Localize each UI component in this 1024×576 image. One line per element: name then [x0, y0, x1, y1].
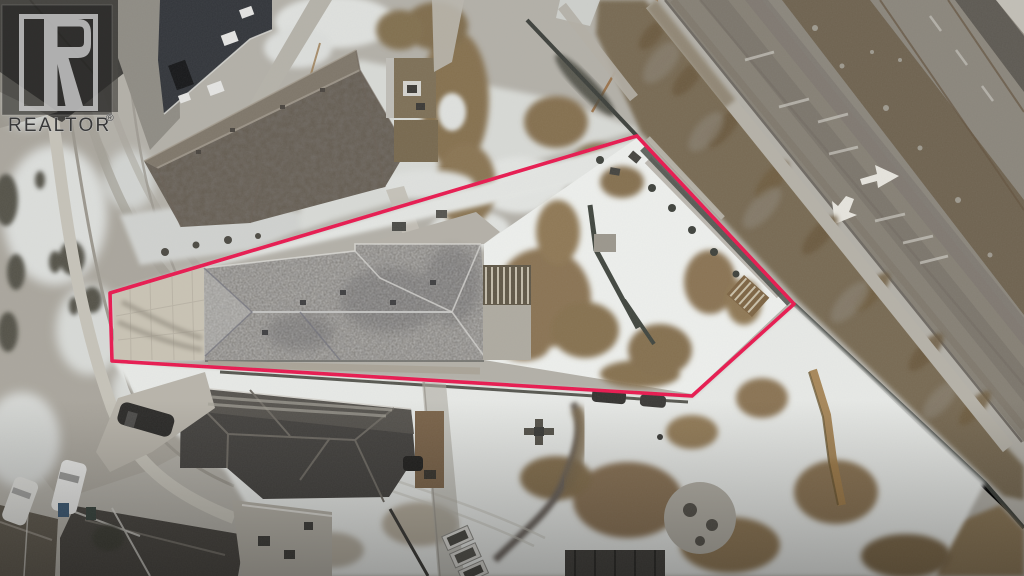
svg-text:REALTOR: REALTOR: [8, 115, 111, 136]
svg-text:®: ®: [106, 112, 114, 124]
